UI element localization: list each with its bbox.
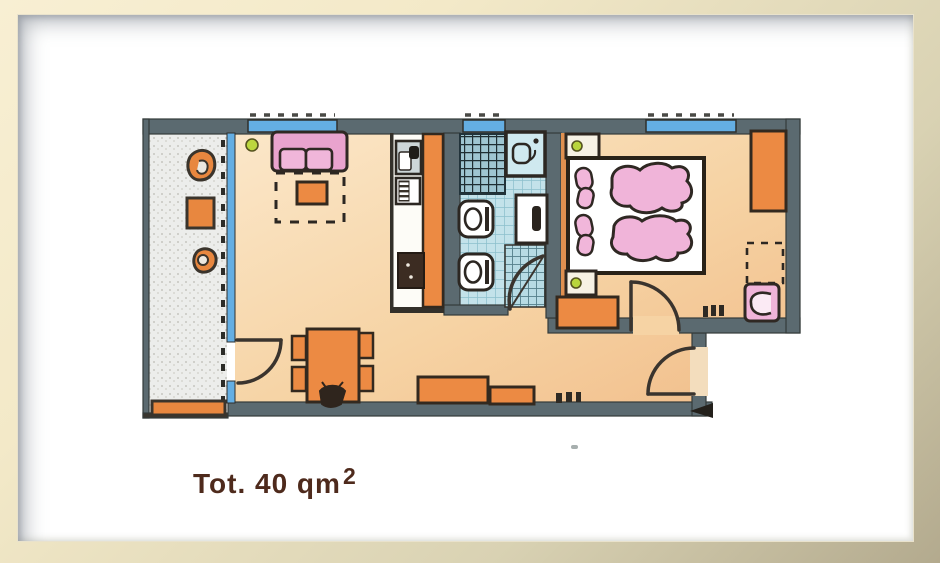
sofa-cushion: [306, 149, 332, 170]
refrigerator: [398, 253, 424, 288]
outside-mask: [706, 333, 816, 433]
kitchen-counter: [423, 134, 443, 307]
coffee-table: [297, 182, 327, 204]
lamp-dot: [572, 141, 582, 151]
dining-chair: [359, 366, 373, 391]
sofa-cushion: [280, 149, 306, 170]
planter-box: [152, 401, 225, 415]
sideboard-large: [418, 377, 488, 403]
dining-chair: [292, 367, 306, 391]
green-dot-marker: [246, 139, 258, 151]
balcony-table: [187, 198, 214, 228]
bedroom-door-opening: [633, 316, 679, 335]
floor-plan: [0, 0, 940, 563]
bath-bottom-wall: [444, 305, 508, 315]
balcony-floor: [149, 133, 227, 415]
bedroom-threshold-marks: [703, 305, 724, 317]
living-room-window: [248, 115, 337, 132]
bedroom-right-wall: [786, 119, 800, 333]
toilet: [459, 201, 493, 237]
stove: [396, 178, 420, 204]
framed-floor-plan: Tot. 40 qm2: [0, 0, 940, 563]
kitchen-sink: [396, 141, 421, 174]
threshold-marks: [556, 392, 581, 403]
pillow: [576, 234, 594, 256]
nightstand-top: [566, 134, 599, 158]
duvet: [611, 216, 691, 261]
balcony-left-wall: [143, 119, 149, 418]
armchair: [745, 284, 779, 321]
lamp-dot: [571, 278, 581, 288]
sideboard-small: [490, 387, 534, 404]
total-area-text: Tot. 40 qm: [193, 468, 341, 499]
entry-door-opening: [690, 347, 708, 396]
total-area-superscript: 2: [343, 463, 357, 489]
total-area-label: Tot. 40 qm2: [193, 468, 357, 500]
kitchen-partition: [390, 133, 394, 313]
nightstand-bottom: [566, 271, 596, 295]
stray-mark: [571, 445, 578, 449]
balcony-chair-bottom-seat: [198, 255, 208, 265]
duvet: [611, 163, 691, 212]
sofa: [272, 132, 347, 171]
bathroom-window: [463, 115, 505, 132]
sink-cabinet: [516, 195, 547, 243]
dining-chair: [292, 336, 306, 360]
washbasin: [506, 132, 545, 176]
wardrobe: [751, 131, 786, 211]
dining-chair: [359, 333, 373, 358]
bedroom-window: [646, 115, 736, 132]
shower: [460, 134, 505, 194]
dresser: [557, 297, 618, 328]
tiled-floor-patch: [505, 245, 545, 307]
bidet: [459, 254, 493, 290]
